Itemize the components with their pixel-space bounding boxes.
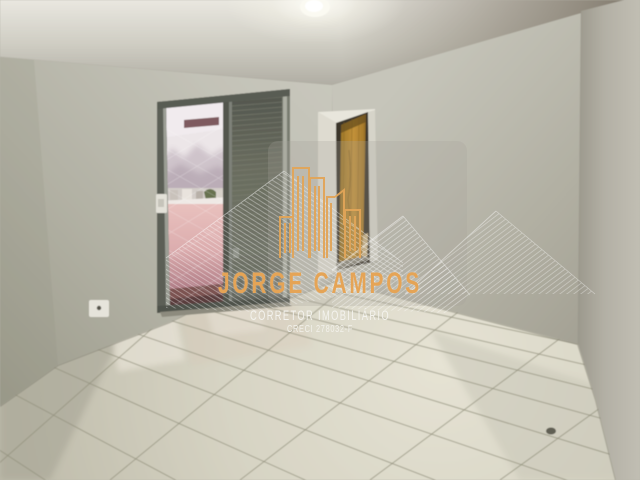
svg-text:CRECI 278032-F: CRECI 278032-F <box>287 323 353 335</box>
svg-text:JORGE CAMPOS: JORGE CAMPOS <box>218 267 422 300</box>
svg-text:CORRETOR IMOBILIÁRIO: CORRETOR IMOBILIÁRIO <box>250 308 390 323</box>
